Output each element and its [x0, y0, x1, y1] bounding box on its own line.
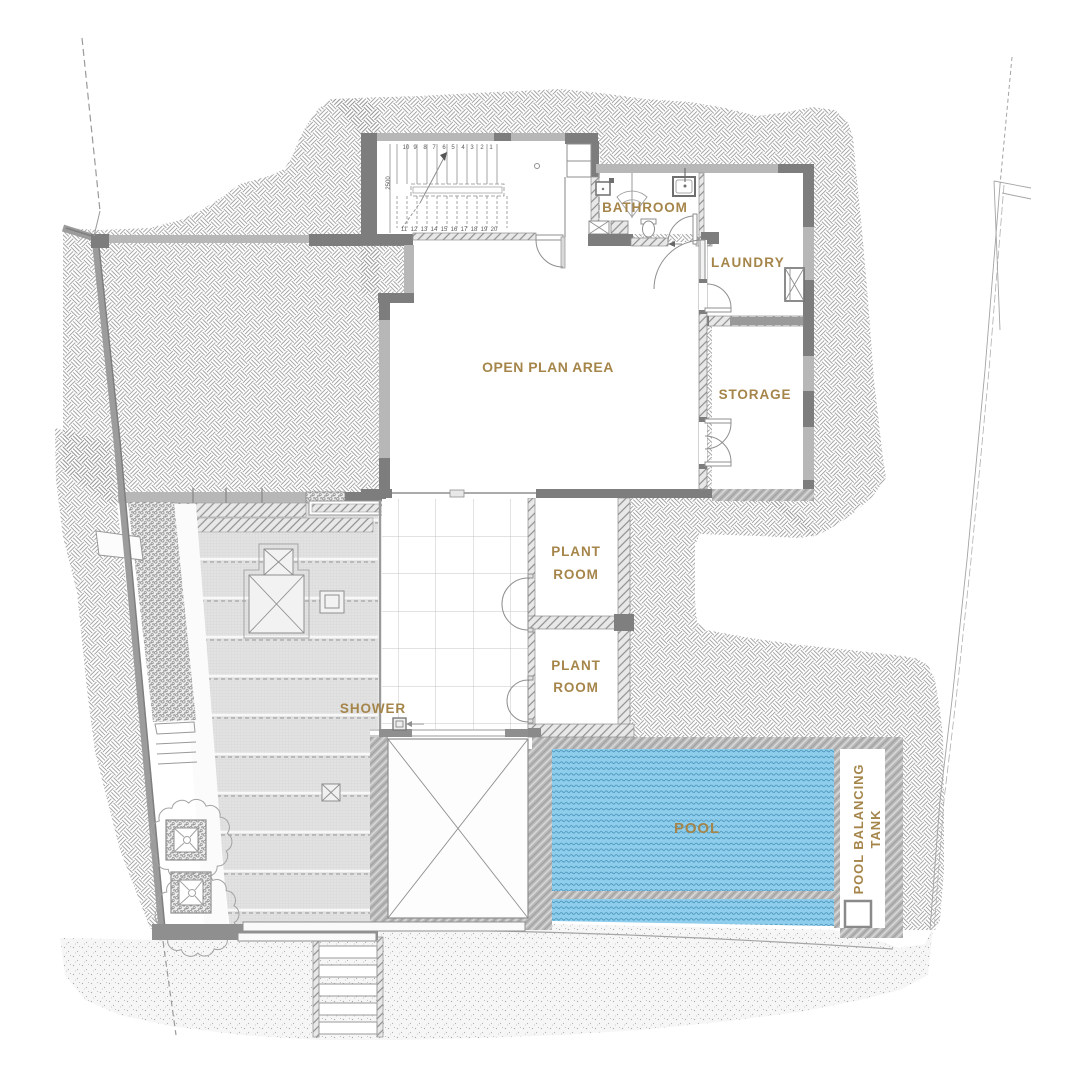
svg-text:TANK: TANK	[868, 810, 883, 849]
svg-text:LAUNDRY: LAUNDRY	[711, 255, 785, 270]
svg-text:2500: 2500	[386, 176, 392, 190]
svg-text:BATHROOM: BATHROOM	[602, 200, 688, 215]
svg-text:STORAGE: STORAGE	[719, 387, 792, 402]
svg-text:15: 15	[441, 227, 448, 233]
svg-text:OPEN PLAN AREA: OPEN PLAN AREA	[482, 359, 614, 375]
svg-text:POOL: POOL	[674, 820, 720, 837]
svg-text:ROOM: ROOM	[553, 680, 599, 695]
svg-text:PLANT: PLANT	[551, 544, 601, 559]
svg-text:16: 16	[451, 227, 458, 233]
svg-text:12: 12	[411, 227, 418, 233]
svg-text:POOL BALANCING: POOL BALANCING	[851, 764, 866, 895]
svg-text:19: 19	[481, 227, 488, 233]
svg-text:11: 11	[401, 227, 408, 233]
svg-text:17: 17	[461, 227, 468, 233]
svg-text:ROOM: ROOM	[553, 567, 599, 582]
svg-text:18: 18	[471, 227, 478, 233]
svg-text:13: 13	[421, 227, 428, 233]
svg-text:PLANT: PLANT	[551, 658, 601, 673]
svg-text:20: 20	[491, 227, 498, 233]
svg-text:SHOWER: SHOWER	[340, 701, 406, 716]
svg-text:10: 10	[403, 145, 410, 151]
svg-text:14: 14	[431, 227, 438, 233]
